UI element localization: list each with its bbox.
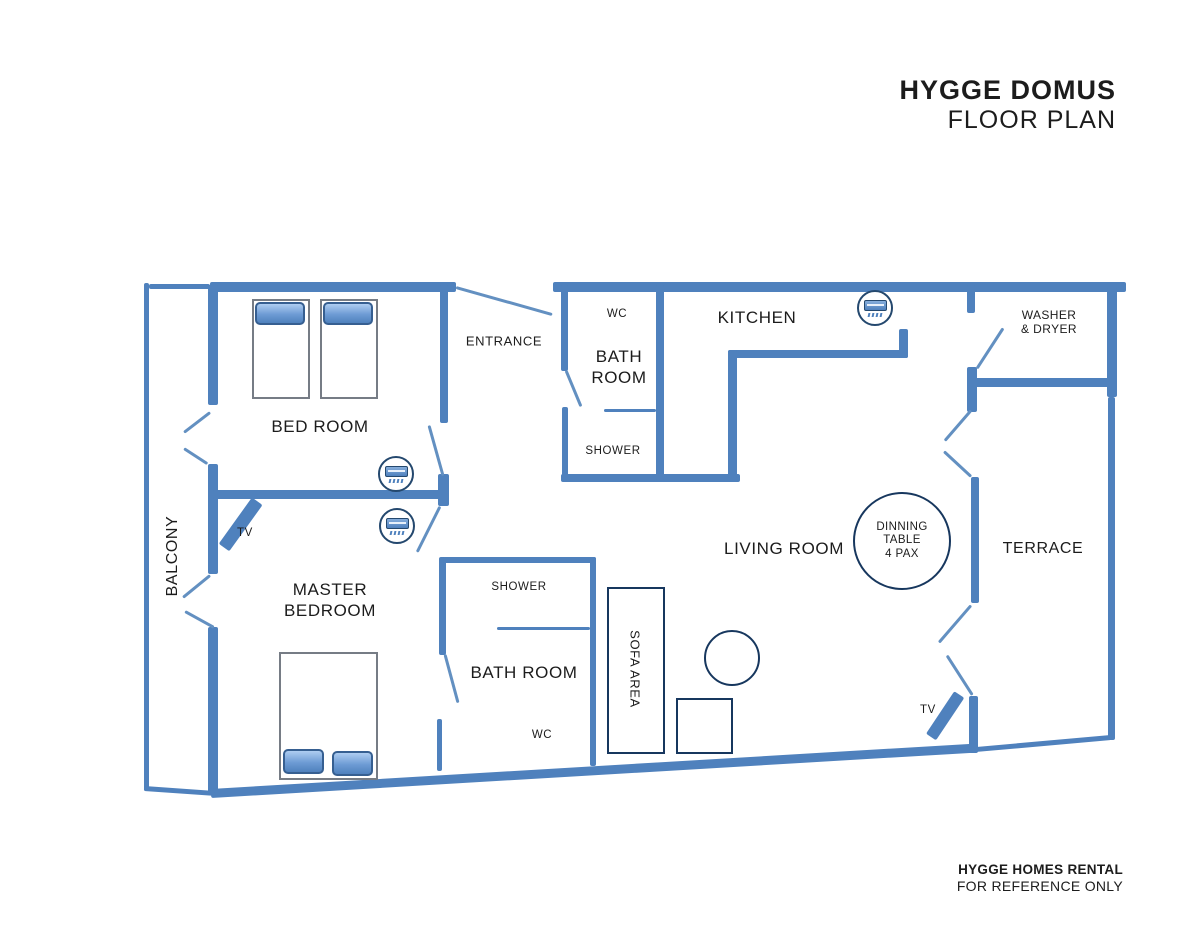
door-bath1: [565, 370, 583, 407]
ac-airflow: [868, 313, 882, 317]
wall-bath1-bottom: [561, 474, 740, 482]
wall-balcony-bottom: [144, 786, 215, 796]
square-table: [676, 698, 733, 754]
page-subtitle: FLOOR PLAN: [899, 105, 1116, 135]
pillow: [255, 302, 305, 325]
pillow: [323, 302, 373, 325]
door-balcony-master-lower: [184, 610, 214, 629]
door-terrace-lower-a: [938, 604, 972, 643]
dining-table-label: 4 PAX: [885, 548, 919, 562]
room-label-bedroom: BED ROOM: [271, 417, 368, 437]
label-bath2-wc: WC: [532, 729, 552, 741]
wall-bath1-shower-divider: [604, 409, 656, 412]
door-terrace-lower-b: [946, 655, 974, 696]
footer-brand: HYGGE HOMES RENTAL: [957, 861, 1123, 878]
wall-balcony-divider-2: [208, 464, 218, 574]
page-title: HYGGE DOMUS: [899, 75, 1116, 105]
door-balcony-master-upper: [182, 574, 211, 598]
wall-bath2-top: [443, 557, 596, 563]
wall-bath2-left-stub: [437, 719, 442, 771]
wall-balcony-divider-1: [208, 285, 218, 405]
single-bed-1: [252, 299, 310, 399]
wall-kitchen-vertical: [728, 350, 737, 478]
wall-bath2-right: [590, 557, 596, 766]
wall-balcony-divider-3: [208, 627, 218, 795]
dining-table: DINNING TABLE 4 PAX: [853, 492, 951, 590]
room-label-washer-dryer: WASHER & DRYER: [1021, 308, 1077, 336]
room-label-living: LIVING ROOM: [724, 539, 844, 559]
round-table: [704, 630, 760, 686]
wall-bedroom-right: [440, 285, 448, 423]
title-block: HYGGE DOMUS FLOOR PLAN: [899, 75, 1116, 135]
wall-terrace-left-mid: [971, 477, 979, 603]
door-bedroom: [428, 425, 445, 476]
wall-bath1-right: [656, 285, 664, 480]
wall-top-left: [210, 282, 456, 292]
label-sofa-area: SOFA AREA: [628, 630, 643, 708]
floor-plan-page: HYGGE DOMUS FLOOR PLAN: [0, 0, 1200, 927]
ac-unit-icon: [857, 290, 893, 326]
wall-bath1-left-stub: [562, 407, 568, 477]
footer-block: HYGGE HOMES RENTAL FOR REFERENCE ONLY: [957, 861, 1123, 895]
door-terrace-upper-a: [944, 410, 972, 442]
door-bath2: [444, 654, 460, 703]
wall-junction-block: [438, 474, 449, 506]
label-bath1-wc: WC: [607, 308, 627, 320]
wall-bedroom-divider: [213, 490, 447, 499]
tv-master: [219, 497, 263, 551]
double-bed: [279, 652, 378, 780]
dining-table-label: DINNING: [876, 521, 927, 535]
room-label-bathroom-1: BATH ROOM: [591, 346, 646, 388]
wall-top-main: [553, 282, 1126, 292]
ac-body: [386, 518, 409, 529]
wall-bath2-left: [439, 557, 446, 655]
ac-airflow: [390, 531, 404, 535]
footer-disclaimer: FOR REFERENCE ONLY: [957, 878, 1123, 895]
label-bath1-shower: SHOWER: [585, 445, 640, 457]
wall-bath1-left: [561, 285, 568, 371]
single-bed-2: [320, 299, 378, 399]
ac-unit-icon: [379, 508, 415, 544]
door-master-bedroom: [416, 506, 442, 553]
ac-body: [385, 466, 408, 477]
wall-kitchen-stub: [899, 329, 908, 358]
room-label-entrance: ENTRANCE: [466, 334, 542, 349]
wall-washer-bottom: [975, 378, 1117, 387]
door-terrace-upper-b: [943, 450, 972, 477]
label-tv-living: TV: [920, 704, 936, 716]
room-label-bathroom-2: BATH ROOM: [470, 663, 577, 683]
pillow: [332, 751, 373, 776]
wall-balcony-left: [144, 283, 149, 791]
wall-bath2-shower-divider: [497, 627, 590, 630]
door-balcony-bedroom-upper: [183, 411, 211, 434]
room-label-terrace: TERRACE: [1003, 540, 1084, 558]
room-label-master-bedroom: MASTER BEDROOM: [284, 579, 376, 621]
wall-kitchen-horizontal: [728, 350, 908, 358]
dining-table-label: TABLE: [883, 534, 921, 548]
wall-washer-corner: [967, 367, 977, 412]
door-entrance: [456, 286, 553, 316]
room-label-balcony: BALCONY: [164, 516, 182, 597]
wall-washer-left-stub: [967, 285, 975, 313]
wall-washer-right: [1107, 288, 1117, 397]
door-balcony-bedroom-lower: [183, 447, 208, 465]
wall-terrace-bottom: [976, 735, 1112, 752]
wall-balcony-top: [149, 284, 210, 289]
label-bath2-shower: SHOWER: [491, 581, 546, 593]
wall-terrace-right: [1108, 397, 1115, 740]
label-tv-master: TV: [237, 527, 253, 539]
ac-airflow: [389, 479, 403, 483]
ac-body: [864, 300, 887, 311]
pillow: [283, 749, 324, 774]
room-label-kitchen: KITCHEN: [718, 308, 797, 328]
ac-unit-icon: [378, 456, 414, 492]
door-washer-dryer: [976, 327, 1005, 369]
